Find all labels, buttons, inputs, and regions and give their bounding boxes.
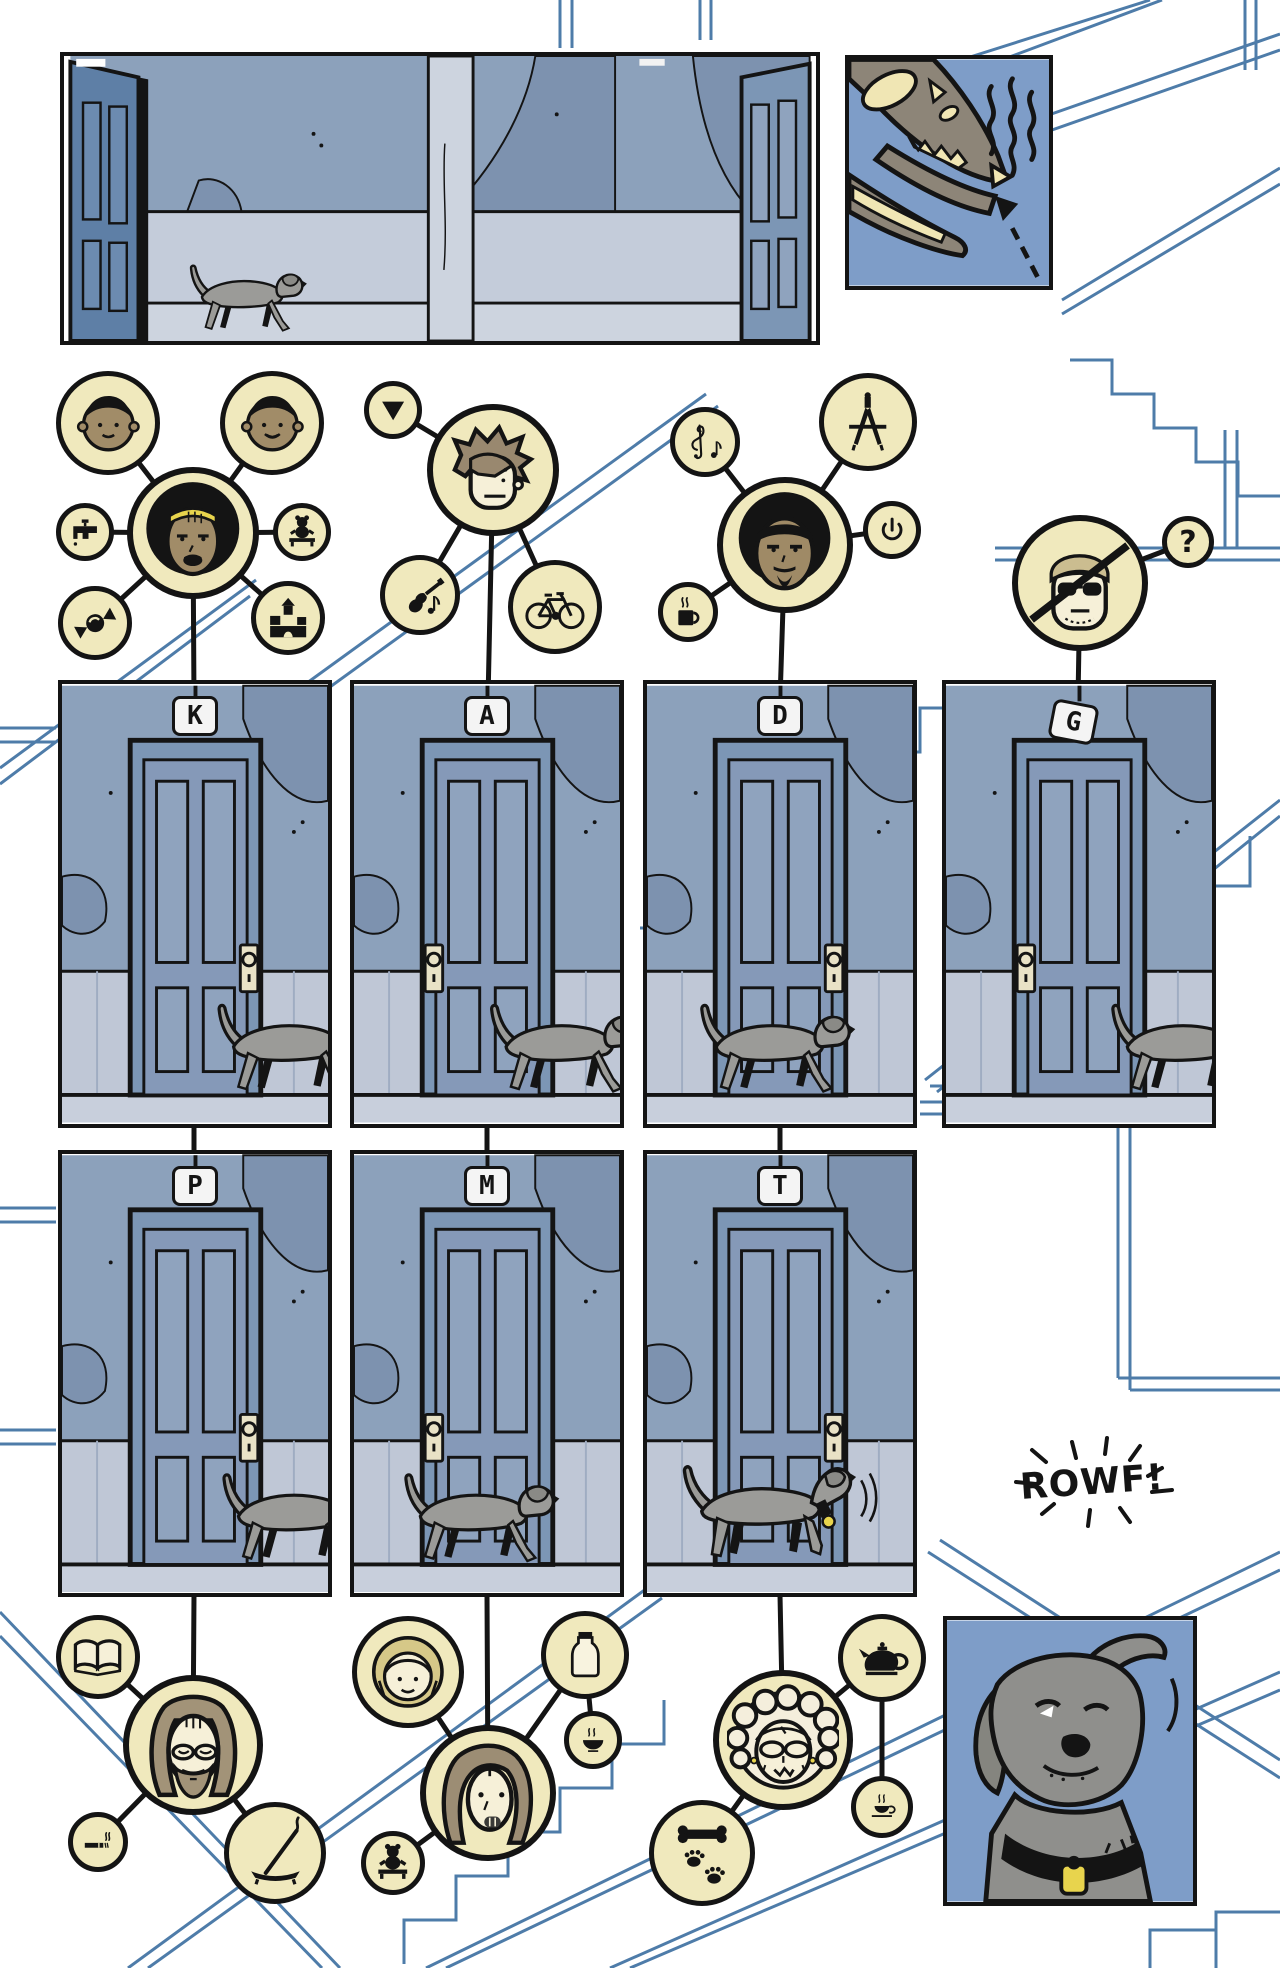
teddy-bear-icon (361, 1831, 425, 1895)
child-face-icon (220, 371, 324, 475)
bone-paws-icon (649, 1800, 755, 1906)
resident-k-avatar (127, 467, 259, 599)
girl-face-icon (352, 1616, 464, 1728)
resident-g-avatar-crossed-out (1012, 515, 1148, 651)
resident-t-avatar (713, 1670, 853, 1810)
comic-page: K A D G P M T (0, 0, 1280, 1968)
candy-icon (58, 586, 132, 660)
door-panel-K: K (58, 680, 332, 1128)
door-label: K (172, 696, 218, 736)
resident-a-avatar (427, 404, 559, 536)
door-label: A (464, 696, 510, 736)
teacup-icon (851, 1776, 913, 1838)
cigarette-icon (68, 1812, 128, 1872)
door-label: M (464, 1166, 510, 1206)
question-mark-text: ? (1179, 525, 1196, 560)
treble-clef-icon (670, 407, 740, 477)
teapot-icon (838, 1614, 926, 1702)
bark-text: ROWF! (999, 1424, 1186, 1540)
food-bowl-icon (564, 1711, 622, 1769)
hallway-panel (60, 52, 820, 345)
power-button-icon (863, 501, 921, 559)
resident-m-avatar (420, 1725, 556, 1861)
door-panel-P: P (58, 1150, 332, 1597)
incense-icon (224, 1802, 326, 1904)
bark-sfx: ROWF! (1002, 1430, 1182, 1534)
teddy-bear-icon (273, 503, 331, 561)
door-panel-G: G (942, 680, 1216, 1128)
door-panel-M: M (350, 1150, 624, 1597)
dinosaur-skull-panel (845, 55, 1053, 290)
door-panel-A: A (350, 680, 624, 1128)
door-panel-T: T (643, 1150, 917, 1597)
open-book-icon (56, 1615, 140, 1699)
guitar-music-icon (380, 555, 460, 635)
door-label: G (1047, 698, 1100, 746)
drafting-compass-icon (819, 373, 917, 471)
door-label: P (172, 1166, 218, 1206)
resident-d-avatar (717, 477, 853, 613)
faucet-icon (56, 503, 114, 561)
coffee-mug-icon (658, 582, 718, 642)
milk-bottle-icon (541, 1611, 629, 1699)
door-label: T (757, 1166, 803, 1206)
door-label: D (757, 696, 803, 736)
question-mark-badge: ? (1162, 516, 1214, 568)
dog-closeup-panel (943, 1616, 1197, 1906)
triangle-down-icon (364, 381, 422, 439)
toy-blocks-icon (251, 581, 325, 655)
bicycle-icon (508, 560, 602, 654)
resident-p-avatar (123, 1675, 263, 1815)
child-face-icon (56, 371, 160, 475)
door-panel-D: D (643, 680, 917, 1128)
